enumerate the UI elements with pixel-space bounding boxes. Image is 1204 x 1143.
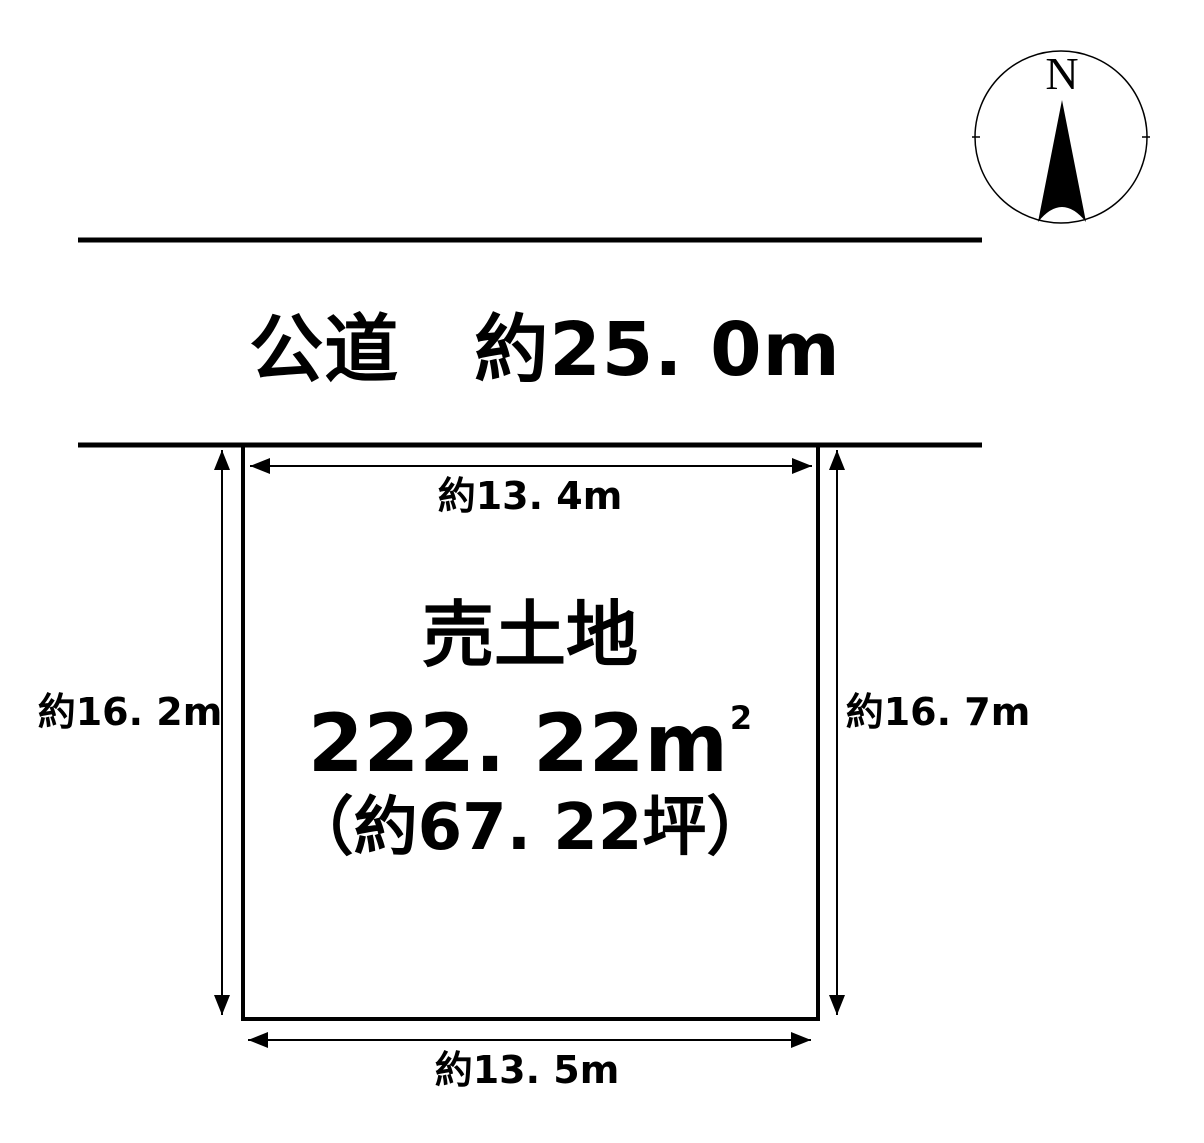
north-compass: N xyxy=(971,47,1151,227)
plot-area-sup: 2 xyxy=(730,699,752,737)
compass-north-label: N xyxy=(1045,48,1078,99)
dim-label-top: 約13. 4m xyxy=(355,474,705,518)
compass-needle-icon xyxy=(1038,100,1086,222)
plot-caption: 売土地 222. 22m2 （約67. 22坪） xyxy=(241,443,819,1021)
dim-label-left: 約16. 2m xyxy=(10,690,250,734)
dim-label-right: 約16. 7m xyxy=(818,690,1058,734)
plot-area-value: 222. 22m xyxy=(308,697,728,790)
plot-area-tsubo: （約67. 22坪） xyxy=(290,786,771,870)
land-plot-diagram: 公道 約25. 0m 売土地 222. 22m2 （約67. 22坪） 約13.… xyxy=(0,0,1204,1143)
plot-title: 売土地 xyxy=(422,594,638,676)
dim-label-bottom: 約13. 5m xyxy=(352,1048,702,1092)
road-label: 公道 約25. 0m xyxy=(0,300,1090,400)
plot-area-m2: 222. 22m2 xyxy=(308,676,752,786)
